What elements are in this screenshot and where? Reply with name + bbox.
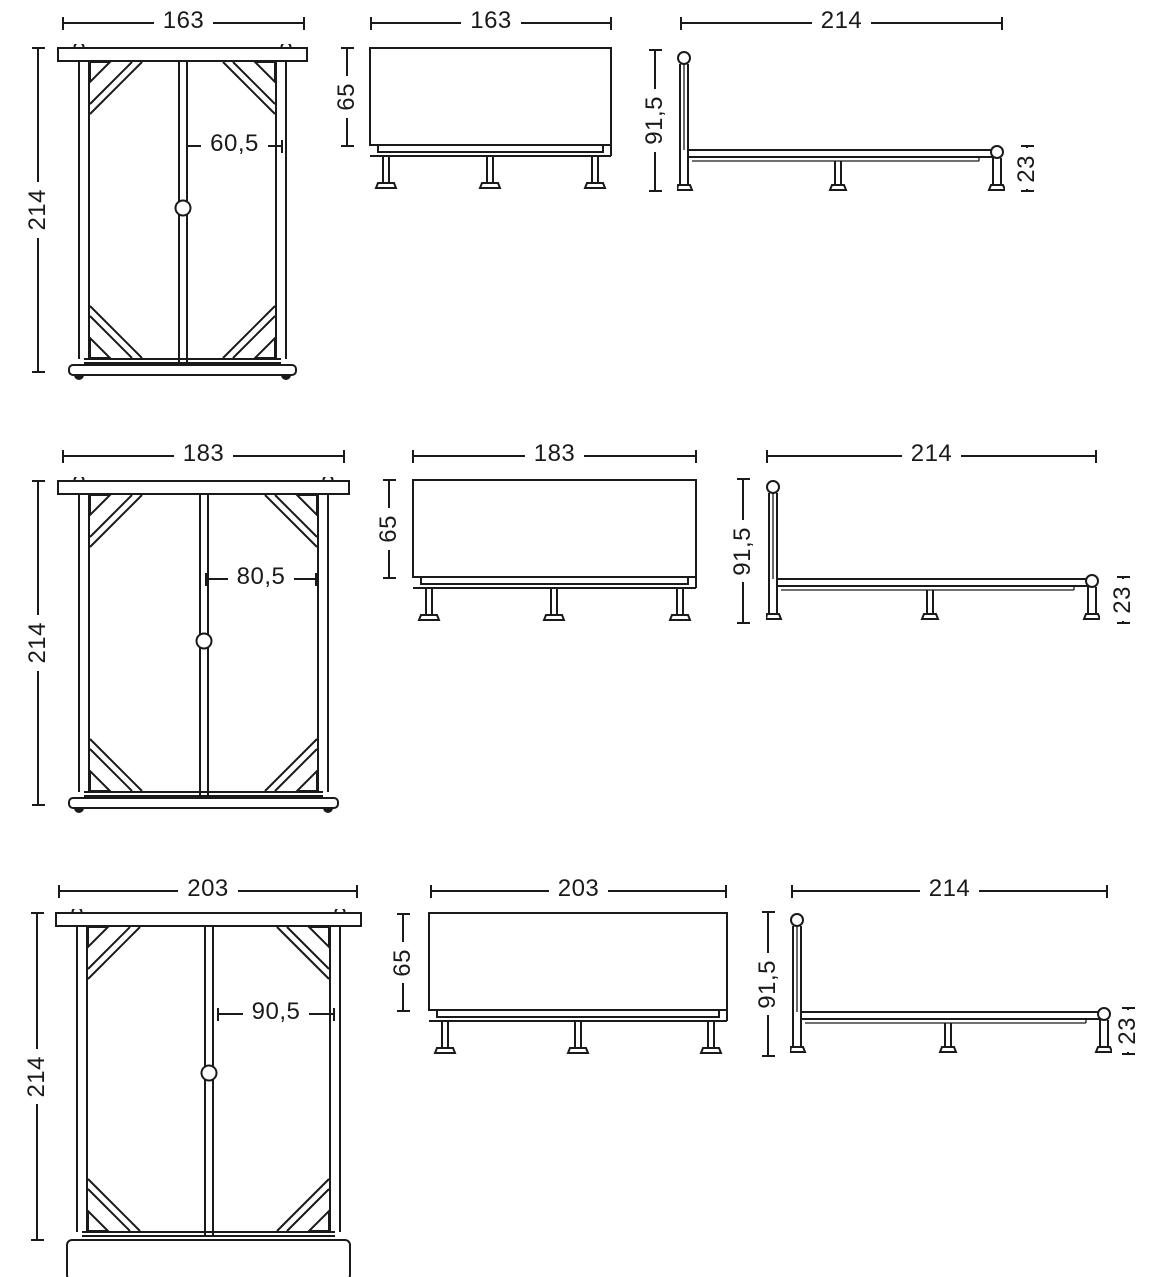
dimension-top-width: 203 xyxy=(58,878,358,904)
dim-tick xyxy=(1122,1053,1135,1055)
dim-tick xyxy=(356,885,358,898)
top-view-drawing xyxy=(57,44,308,387)
dim-label: 163 xyxy=(461,9,521,33)
dim-line xyxy=(268,145,281,147)
side-view-drawing xyxy=(766,478,1100,626)
dim-line xyxy=(60,890,178,892)
dim-line xyxy=(188,145,201,147)
dim-line xyxy=(36,1104,38,1239)
dim-label: 23 xyxy=(1116,1010,1140,1052)
top-view-drawing xyxy=(57,477,350,820)
dim-line xyxy=(372,22,461,24)
dim-line xyxy=(767,913,769,953)
dim-line xyxy=(219,1013,243,1015)
dim-line xyxy=(979,890,1106,892)
dim-tick xyxy=(737,622,750,624)
dim-label: 80,5 xyxy=(228,565,295,589)
dim-line xyxy=(346,49,348,76)
dim-line xyxy=(402,983,404,1010)
dim-line xyxy=(414,455,525,457)
dim-tick xyxy=(1095,450,1097,463)
dimension-headboard-height: 91,5 xyxy=(755,911,781,1057)
dim-line xyxy=(37,238,39,371)
dimension-top-width: 163 xyxy=(62,10,305,36)
dim-line xyxy=(961,455,1095,457)
dim-label: 23 xyxy=(1111,579,1135,621)
dim-line xyxy=(871,22,1001,24)
dim-label: 65 xyxy=(335,76,359,118)
dimension-side-length: 214 xyxy=(766,443,1097,469)
dim-line xyxy=(768,455,902,457)
dim-line xyxy=(388,481,390,508)
dim-label: 203 xyxy=(178,877,238,901)
dim-line xyxy=(37,482,39,615)
dim-tick xyxy=(695,450,697,463)
dimension-side-length: 214 xyxy=(791,878,1108,904)
dim-tick xyxy=(315,573,317,586)
drawing-sheet: 163 214 60,5 163 65 214 91,5 23 xyxy=(0,0,1161,1277)
dim-line xyxy=(682,22,812,24)
dimension-side-length: 214 xyxy=(680,10,1003,36)
dimension-front-height: 65 xyxy=(334,47,360,147)
dim-line xyxy=(521,22,610,24)
dim-tick xyxy=(333,1008,335,1021)
dimension-front-height: 65 xyxy=(390,913,416,1012)
front-view-drawing xyxy=(369,46,612,196)
side-view-drawing xyxy=(677,49,1005,197)
dim-tick xyxy=(1021,190,1034,192)
dim-line xyxy=(654,152,656,190)
dim-label: 65 xyxy=(377,508,401,550)
dim-tick xyxy=(343,450,345,463)
dimension-frame-height: 23 xyxy=(1110,576,1136,624)
dimension-front-width: 183 xyxy=(412,443,697,469)
dim-tick xyxy=(610,17,612,30)
dim-label: 65 xyxy=(391,942,415,984)
dim-label: 91,5 xyxy=(643,89,667,152)
dim-line xyxy=(64,22,154,24)
side-view-drawing xyxy=(790,911,1112,1059)
dim-line xyxy=(207,578,228,580)
dim-line xyxy=(36,914,38,1049)
dimension-headboard-height: 91,5 xyxy=(642,49,668,192)
dimension-frame-height: 23 xyxy=(1115,1007,1141,1055)
dim-tick xyxy=(341,145,354,147)
dim-label: 214 xyxy=(26,182,50,238)
dim-label: 60,5 xyxy=(201,132,268,156)
dimension-half-width: 90,5 xyxy=(217,1001,335,1027)
dim-line xyxy=(309,1013,333,1015)
dim-label: 90,5 xyxy=(243,1000,310,1024)
dim-label: 214 xyxy=(25,1049,49,1105)
dim-line xyxy=(37,49,39,182)
dim-tick xyxy=(32,371,45,373)
dim-label: 91,5 xyxy=(731,520,755,583)
dim-line xyxy=(654,51,656,89)
dimension-half-width: 80,5 xyxy=(205,566,317,592)
dim-label: 214 xyxy=(812,9,872,33)
dim-label: 203 xyxy=(549,877,609,901)
dim-line xyxy=(294,578,315,580)
dim-line xyxy=(37,671,39,804)
dimension-top-length: 214 xyxy=(24,912,50,1241)
dim-label: 214 xyxy=(920,877,980,901)
dim-line xyxy=(432,890,549,892)
dim-label: 183 xyxy=(525,442,585,466)
dim-line xyxy=(238,890,356,892)
dimension-frame-height: 23 xyxy=(1014,145,1040,192)
dim-tick xyxy=(303,17,305,30)
dimension-half-width: 60,5 xyxy=(186,133,283,159)
front-view-drawing xyxy=(428,911,728,1061)
dim-line xyxy=(742,582,744,622)
dim-tick xyxy=(649,190,662,192)
dim-line xyxy=(742,480,744,520)
dimension-front-width: 203 xyxy=(430,878,727,904)
dimension-top-width: 183 xyxy=(62,443,345,469)
dim-label: 214 xyxy=(26,615,50,671)
dim-tick xyxy=(1117,622,1130,624)
dim-label: 23 xyxy=(1015,148,1039,190)
dim-line xyxy=(767,1015,769,1055)
dim-line xyxy=(584,455,695,457)
dim-line xyxy=(64,455,174,457)
dim-tick xyxy=(762,1055,775,1057)
dimension-front-height: 65 xyxy=(376,479,402,579)
dim-label: 214 xyxy=(902,442,962,466)
dim-line xyxy=(402,915,404,942)
dim-label: 163 xyxy=(154,9,214,33)
top-view-drawing xyxy=(55,909,362,1277)
dim-line xyxy=(608,890,725,892)
dimension-headboard-height: 91,5 xyxy=(730,478,756,624)
dim-tick xyxy=(1001,17,1003,30)
dim-label: 91,5 xyxy=(756,953,780,1016)
dimension-front-width: 163 xyxy=(370,10,612,36)
dim-tick xyxy=(281,140,283,153)
dim-tick xyxy=(32,804,45,806)
dimension-top-length: 214 xyxy=(25,47,51,373)
front-view-drawing xyxy=(412,478,697,628)
dim-line xyxy=(346,118,348,145)
dim-line xyxy=(233,455,343,457)
dim-tick xyxy=(383,577,396,579)
dim-line xyxy=(793,890,920,892)
dim-tick xyxy=(725,885,727,898)
dim-line xyxy=(213,22,303,24)
dimension-top-length: 214 xyxy=(25,480,51,806)
dim-tick xyxy=(1106,885,1108,898)
dim-label: 183 xyxy=(174,442,234,466)
dim-line xyxy=(388,550,390,577)
dim-tick xyxy=(31,1239,44,1241)
dim-tick xyxy=(397,1010,410,1012)
